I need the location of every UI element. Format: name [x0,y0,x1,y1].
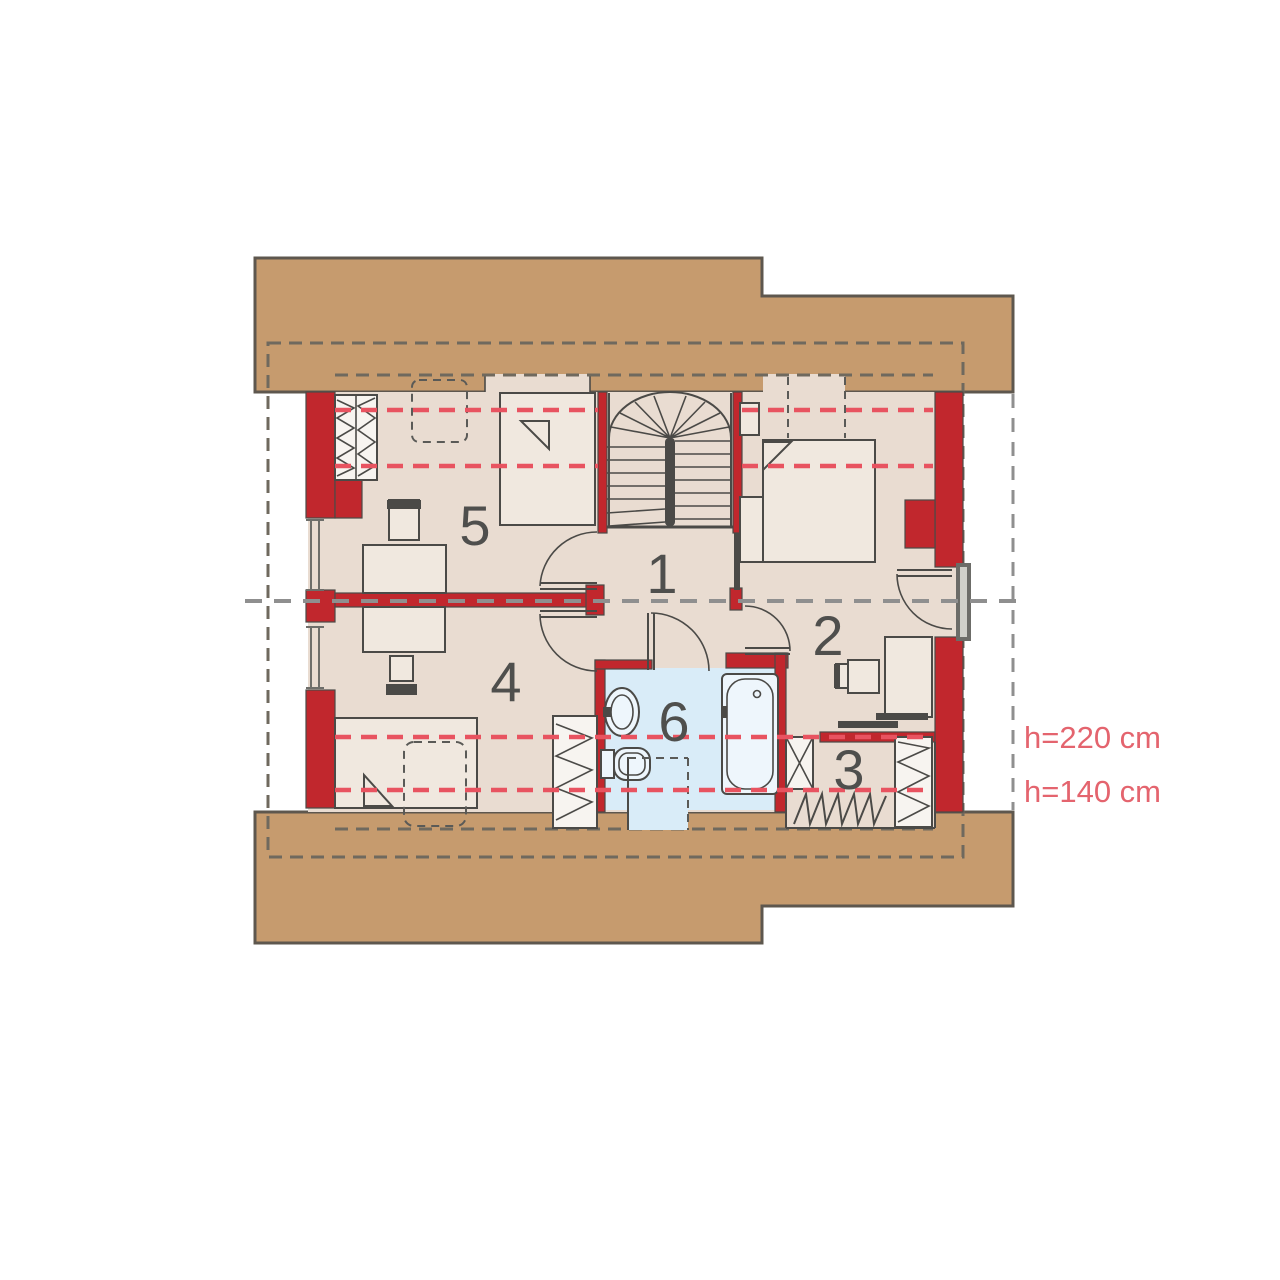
wall-bath-top-left [595,660,652,669]
room-label-2: 2 [812,604,843,667]
room-label-3: 3 [833,738,864,801]
wall-left-upper [306,392,335,518]
chair-back-room2 [834,664,840,688]
radiator-shelf-1 [838,721,898,728]
bathtub [722,674,778,794]
dormer-notch-room2 [763,374,845,393]
room-label-5: 5 [459,494,490,557]
wall-right-upper [935,392,963,567]
desk-room2 [848,660,879,693]
desk-room4 [363,607,445,652]
height-label-220: h=220 cm [1024,720,1161,755]
wall-stair-left [598,392,607,533]
room-label-6: 6 [658,690,689,753]
desk-room5 [363,545,446,593]
chair-back-room5 [387,500,421,509]
dresser-room2 [740,497,763,562]
roof-band-bottom [255,812,1013,943]
room-label-4: 4 [490,650,521,713]
toilet-tank [601,750,614,778]
sink-tap [603,707,611,717]
height-label-140: h=140 cm [1024,774,1161,809]
wardrobe-room2 [885,637,932,717]
floor-plan-drawing: 1 2 3 4 5 6 h=220 cm h=140 cm [0,0,1280,1280]
stair-center-wall [665,438,675,526]
room-label-1: 1 [646,542,677,605]
bathtub-tap [722,706,727,718]
wall-left-lower [306,690,335,808]
chair-room4 [390,656,413,681]
bed-room5 [500,393,595,525]
wall-left-middle [306,590,335,622]
balcony-door-glass [960,567,967,637]
wall-left-extension [335,480,362,518]
bed-room2 [763,440,875,562]
radiator-shelf-2 [876,713,928,720]
floor-plan-canvas: 1 2 3 4 5 6 h=220 cm h=140 cm [0,0,1280,1280]
chair-back-room4 [386,684,417,695]
wall-right-lower [935,637,963,812]
dormer-notch-room5 [485,374,590,393]
bathroom-floor-extension [628,810,688,830]
roof-band-top [255,258,1013,392]
bed-room4 [335,718,477,808]
chimney-block [905,500,935,548]
